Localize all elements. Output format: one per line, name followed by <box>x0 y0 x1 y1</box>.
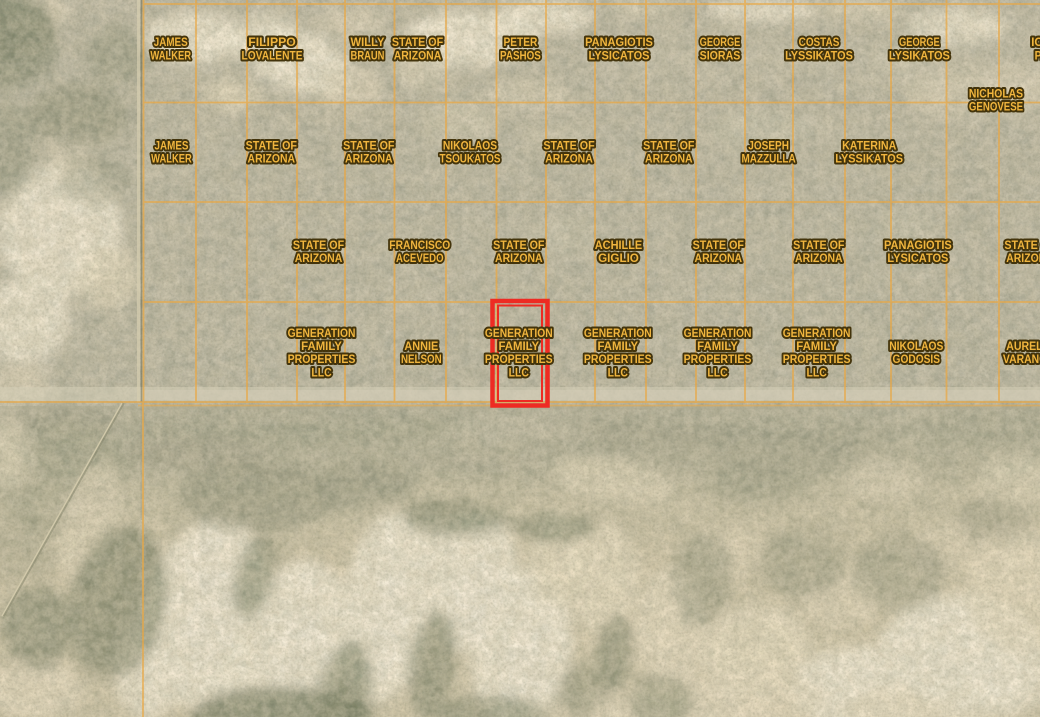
svg-text:GODOSIS: GODOSIS <box>893 354 941 366</box>
svg-text:LYSICATOS: LYSICATOS <box>887 253 948 265</box>
svg-text:ARIZONA: ARIZONA <box>248 154 296 166</box>
svg-text:ARIZONA: ARIZONA <box>1006 253 1040 265</box>
svg-text:GENERATION: GENERATION <box>288 328 356 340</box>
svg-text:ARIZONA: ARIZONA <box>545 154 593 166</box>
svg-text:LLC: LLC <box>311 367 331 379</box>
svg-text:PASHOS: PASHOS <box>500 50 541 62</box>
svg-text:JOSEPH: JOSEPH <box>748 140 789 152</box>
svg-text:LLC: LLC <box>608 367 628 379</box>
svg-text:NELSON: NELSON <box>401 354 442 366</box>
svg-text:NIKOLAOS: NIKOLAOS <box>889 341 943 353</box>
svg-text:ACEVEDO: ACEVEDO <box>396 253 444 265</box>
svg-text:LYSSIKATOS: LYSSIKATOS <box>785 50 853 62</box>
svg-text:FAMILY: FAMILY <box>301 341 342 353</box>
svg-text:LOVALENTE: LOVALENTE <box>242 50 303 62</box>
svg-text:LLC: LLC <box>707 367 727 379</box>
svg-text:ARIZONA: ARIZONA <box>495 253 543 265</box>
svg-text:PROPERTIES: PROPERTIES <box>783 354 851 366</box>
svg-text:AURELIO: AURELIO <box>1006 341 1040 353</box>
svg-text:JAMES: JAMES <box>154 37 188 49</box>
svg-text:STATE OF: STATE OF <box>493 240 544 252</box>
svg-text:STATE OF: STATE OF <box>343 140 394 152</box>
svg-text:GEORGE: GEORGE <box>700 37 741 49</box>
svg-text:STATE OF: STATE OF <box>293 240 344 252</box>
svg-text:GIGLIO: GIGLIO <box>598 253 639 265</box>
svg-text:LYSIKATOS: LYSIKATOS <box>889 50 950 62</box>
svg-text:GENOVESE: GENOVESE <box>969 102 1023 114</box>
svg-text:MAZZULLA: MAZZULLA <box>742 154 796 166</box>
svg-text:STATE OF: STATE OF <box>643 140 694 152</box>
svg-text:STATE OF: STATE OF <box>693 240 744 252</box>
svg-text:KATERINA: KATERINA <box>842 140 896 152</box>
svg-text:ARIZONA: ARIZONA <box>345 154 393 166</box>
svg-text:STATE OF: STATE OF <box>793 240 844 252</box>
svg-text:LLC: LLC <box>806 367 826 379</box>
svg-text:NICHOLAS: NICHOLAS <box>969 88 1023 100</box>
svg-text:GENERATION: GENERATION <box>485 328 553 340</box>
svg-text:LYSICATOS: LYSICATOS <box>589 50 650 62</box>
svg-text:FILIPPO: FILIPPO <box>248 37 296 49</box>
svg-text:WALKER: WALKER <box>151 154 192 166</box>
svg-text:ARIZONA: ARIZONA <box>295 253 343 265</box>
svg-text:WALKER: WALKER <box>150 50 191 62</box>
svg-text:ARIZONA: ARIZONA <box>394 50 442 62</box>
svg-text:FAMILY: FAMILY <box>697 341 738 353</box>
svg-text:PETER: PETER <box>503 37 538 49</box>
svg-text:LYSSIKATOS: LYSSIKATOS <box>835 154 903 166</box>
svg-text:GENERATION: GENERATION <box>584 328 652 340</box>
svg-text:FRANCISCO: FRANCISCO <box>389 240 450 252</box>
svg-text:PAPPAS: PAPPAS <box>1035 50 1040 62</box>
svg-text:STATE OF: STATE OF <box>543 140 594 152</box>
svg-text:PROPERTIES: PROPERTIES <box>288 354 356 366</box>
svg-text:STATE OF: STATE OF <box>246 140 297 152</box>
svg-text:FAMILY: FAMILY <box>498 341 539 353</box>
svg-text:FAMILY: FAMILY <box>597 341 638 353</box>
svg-text:VARANGIS: VARANGIS <box>1003 354 1040 366</box>
svg-text:IOANNIS: IOANNIS <box>1031 37 1040 49</box>
svg-text:ARIZONA: ARIZONA <box>795 253 843 265</box>
svg-text:PROPERTIES: PROPERTIES <box>485 354 553 366</box>
svg-text:LLC: LLC <box>509 367 529 379</box>
svg-text:NIKOLAOS: NIKOLAOS <box>443 140 497 152</box>
svg-text:TSOUKATOS: TSOUKATOS <box>440 154 501 166</box>
svg-text:SIORAS: SIORAS <box>700 50 741 62</box>
svg-text:JAMES: JAMES <box>155 140 189 152</box>
svg-text:PROPERTIES: PROPERTIES <box>684 354 752 366</box>
svg-text:GENERATION: GENERATION <box>684 328 752 340</box>
svg-text:COSTAS: COSTAS <box>799 37 840 49</box>
svg-text:STATE OF: STATE OF <box>1004 240 1040 252</box>
svg-text:ACHILLE: ACHILLE <box>595 240 643 252</box>
svg-text:PANAGIOTIS: PANAGIOTIS <box>884 240 952 252</box>
svg-text:PANAGIOTIS: PANAGIOTIS <box>585 37 653 49</box>
svg-text:ARIZONA: ARIZONA <box>645 154 693 166</box>
svg-text:GEORGE: GEORGE <box>899 37 940 49</box>
svg-text:WILLY: WILLY <box>351 37 385 49</box>
svg-text:BRAUN: BRAUN <box>351 50 385 62</box>
svg-text:GENERATION: GENERATION <box>783 328 851 340</box>
svg-text:FAMILY: FAMILY <box>796 341 837 353</box>
svg-text:STATE OF: STATE OF <box>392 37 443 49</box>
svg-text:PROPERTIES: PROPERTIES <box>584 354 652 366</box>
svg-text:ARIZONA: ARIZONA <box>695 253 743 265</box>
svg-text:ANNIE: ANNIE <box>404 341 438 353</box>
